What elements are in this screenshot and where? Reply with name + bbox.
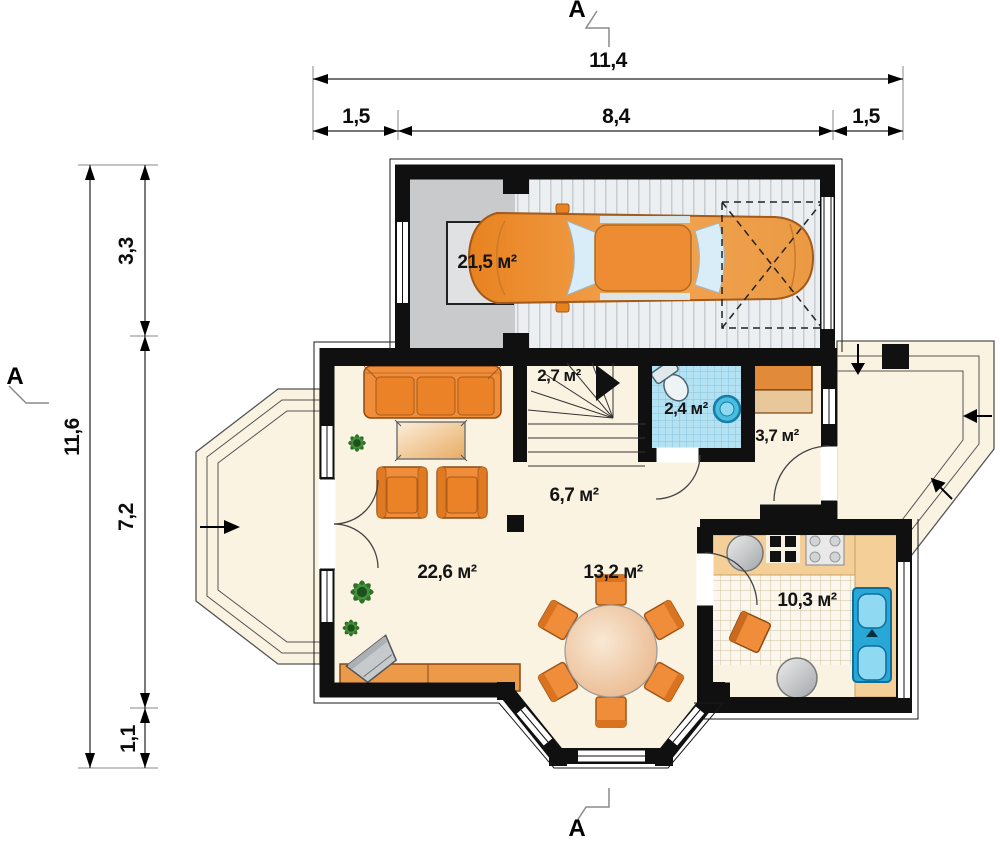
hall-area-label: 6,7 м²: [549, 485, 598, 507]
floor-plan-svg: [0, 0, 1000, 845]
stove: [766, 533, 800, 563]
kitchen-area-label: 10,3 м²: [777, 590, 836, 612]
living-room-area-label: 22,6 м²: [417, 562, 476, 584]
sofa: [364, 366, 501, 418]
floor-plan-canvas: А А А 11,4 1,5 8,4 1,5 11,6 3,3 7,2 1,1 …: [0, 0, 1000, 845]
dim-top-seg-3: 1,5: [852, 105, 880, 129]
dim-left-total: 11,6: [61, 418, 85, 456]
kitchen-tile: [713, 575, 855, 665]
dim-left-seg-3: 1,1: [117, 725, 141, 753]
armchair: [377, 467, 427, 518]
armchair: [437, 467, 487, 518]
bathroom-area-label: 2,4 м²: [664, 399, 708, 419]
plant: [348, 434, 366, 452]
kitchen-sink: [853, 588, 891, 682]
entry-hall-area-label: 3,7 м²: [755, 426, 799, 446]
hall-pillar: [507, 515, 524, 532]
fridge: [727, 535, 763, 571]
section-marker-left: А: [6, 363, 23, 391]
bathroom-sink: [714, 396, 740, 422]
coffee-table: [395, 420, 467, 461]
dining-table: [565, 605, 657, 697]
stairs-area-label: 2,7 м²: [537, 366, 581, 386]
dim-left-seg-1: 3,3: [115, 237, 139, 265]
section-marker-bottom: А: [568, 815, 585, 843]
plant: [350, 580, 373, 603]
section-marker-top: А: [568, 0, 585, 24]
dim-left-seg-2: 7,2: [115, 503, 139, 531]
left-terrace: [196, 389, 320, 664]
car-mirror: [556, 204, 569, 213]
garage-area-label: 21,5 м²: [457, 252, 516, 274]
car: [469, 204, 813, 312]
car-mirror: [556, 303, 569, 312]
plant: [343, 620, 360, 637]
water-heater: [777, 658, 817, 698]
hob: [806, 533, 844, 565]
dining-area-label: 13,2 м²: [583, 562, 642, 584]
dim-top-seg-2: 8,4: [602, 105, 630, 129]
porch-column: [882, 344, 909, 369]
dim-top-total: 11,4: [589, 49, 627, 73]
dim-top-seg-1: 1,5: [342, 105, 370, 129]
